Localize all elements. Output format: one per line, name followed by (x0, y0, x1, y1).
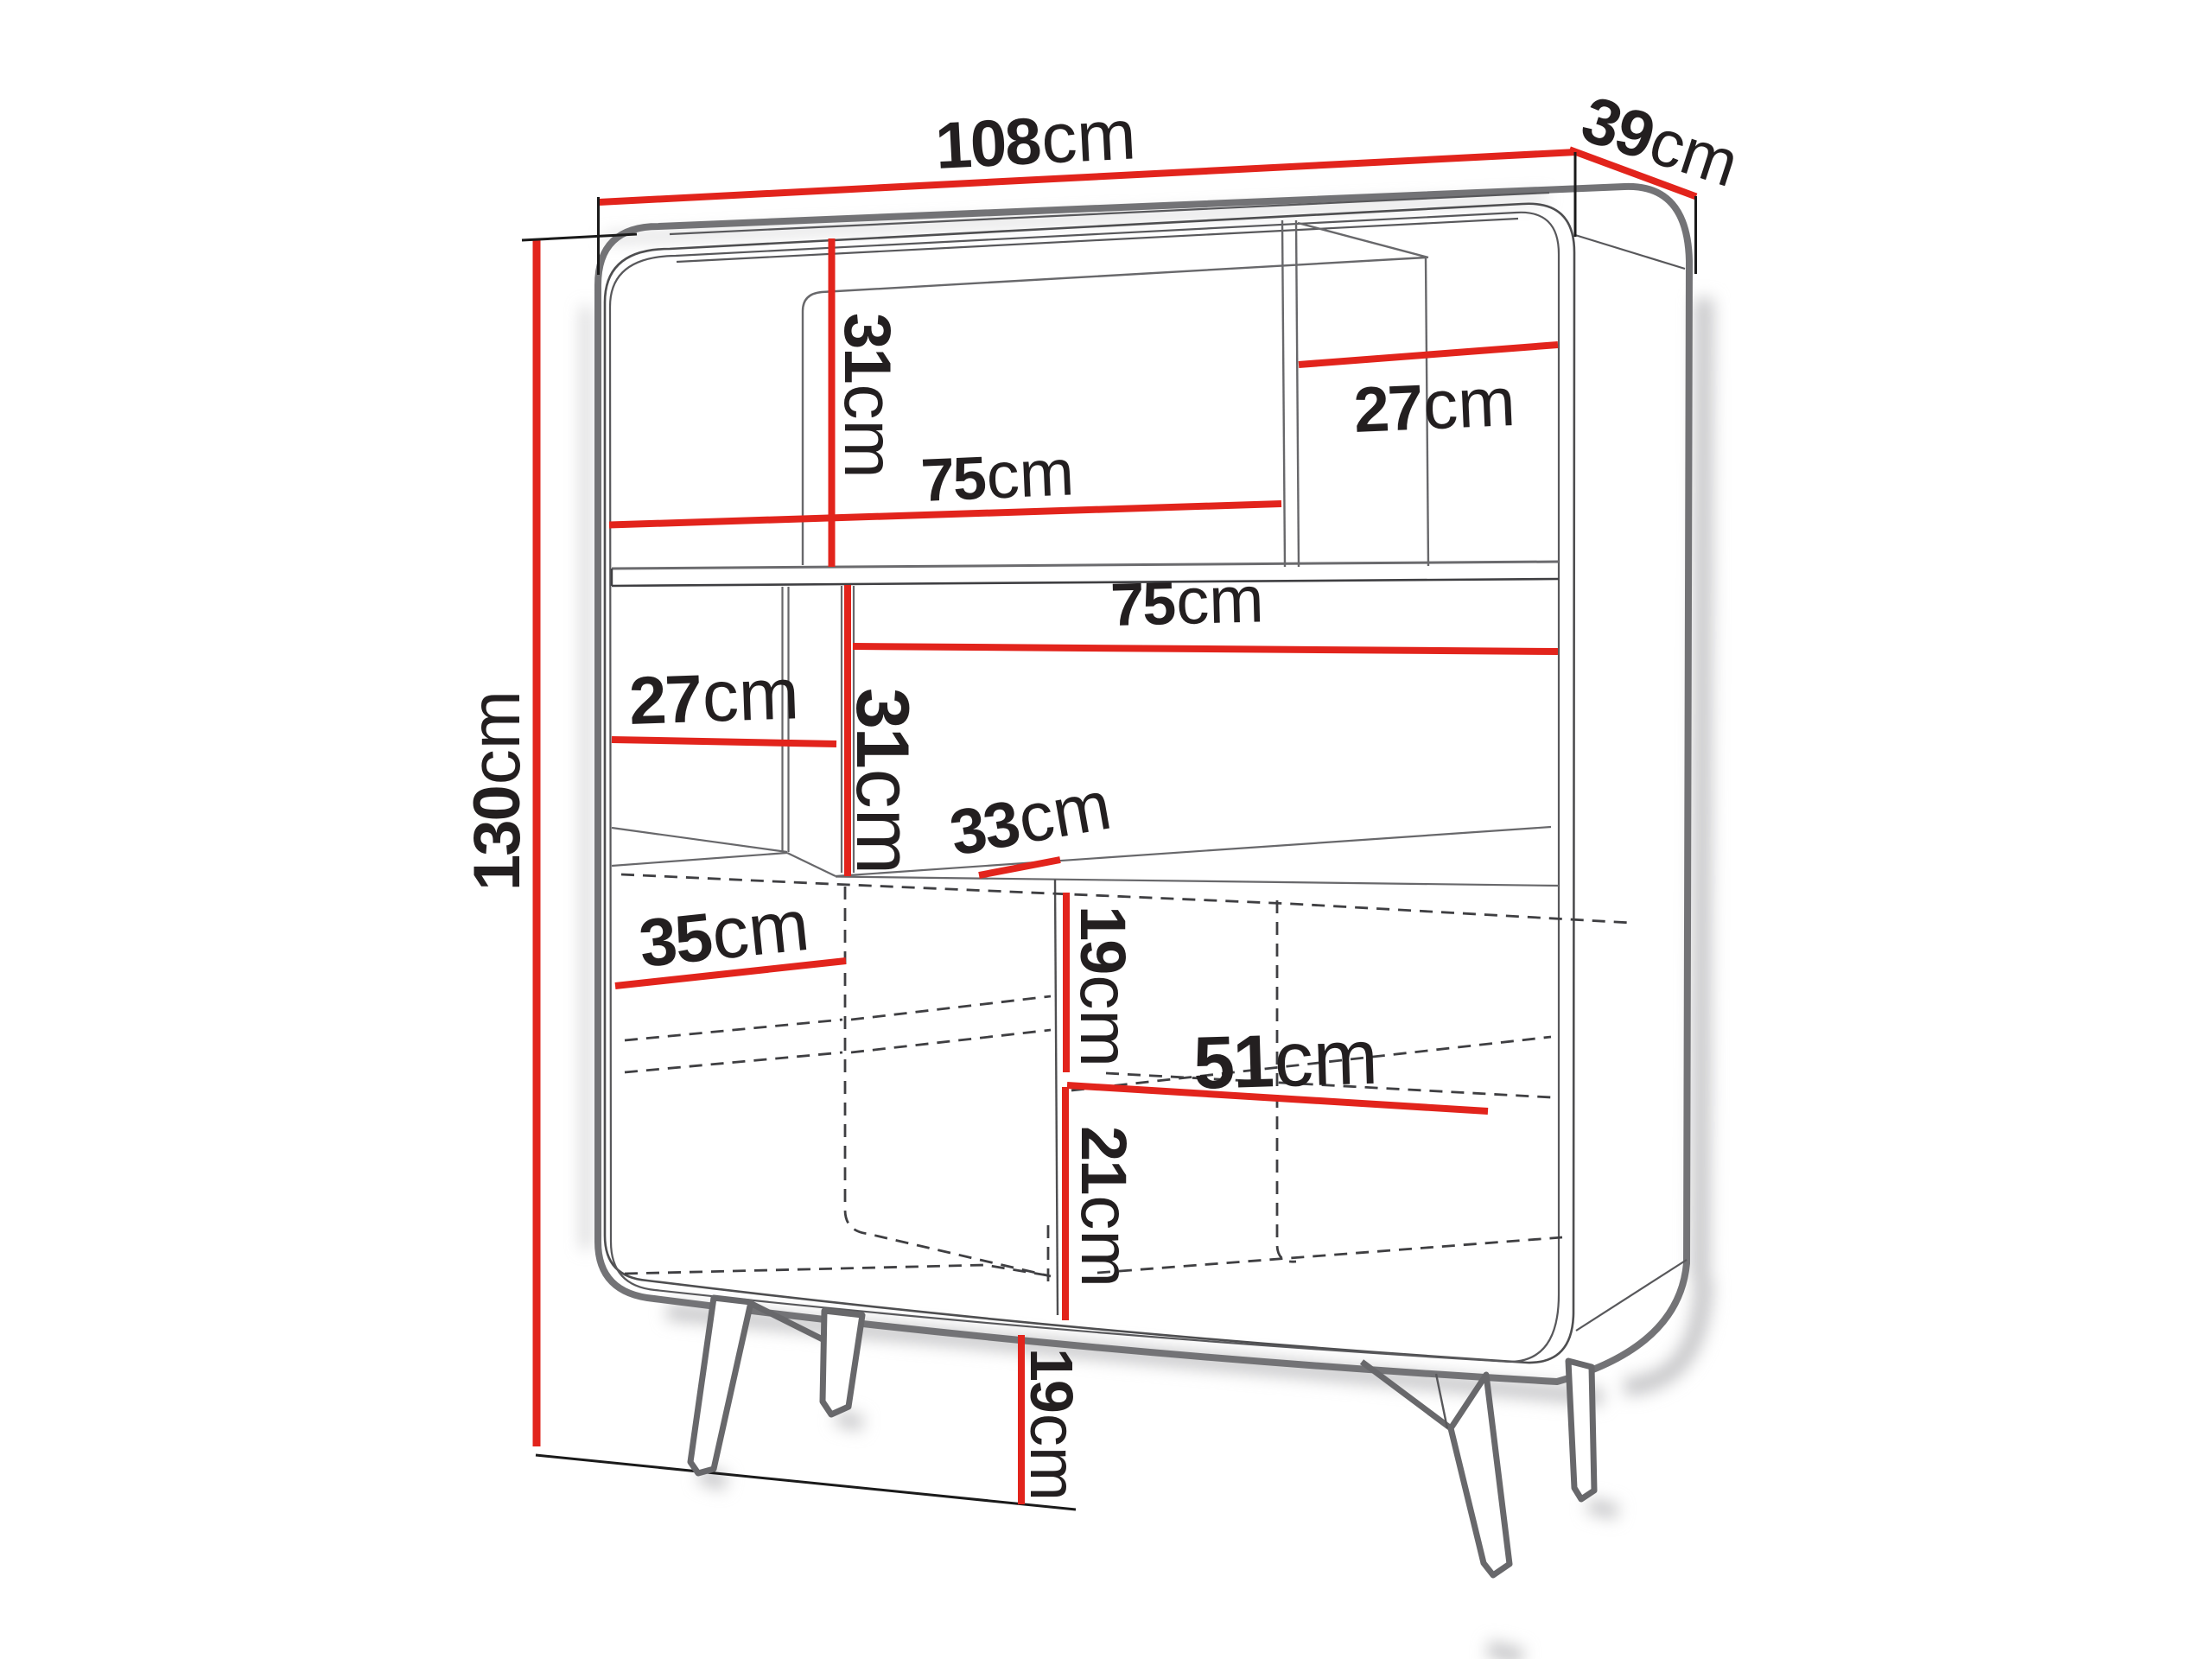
svg-text:27cm: 27cm (1352, 363, 1517, 447)
svg-text:27cm: 27cm (627, 652, 800, 740)
svg-text:31cm: 31cm (840, 688, 928, 874)
svg-text:108cm: 108cm (933, 95, 1137, 184)
svg-text:19cm: 19cm (1066, 906, 1143, 1067)
svg-text:130cm: 130cm (456, 690, 535, 891)
svg-text:75cm: 75cm (919, 435, 1076, 516)
svg-text:19cm: 19cm (1016, 1348, 1090, 1501)
svg-text:21cm: 21cm (1067, 1126, 1144, 1287)
svg-text:75cm: 75cm (1109, 563, 1264, 640)
svg-text:31cm: 31cm (829, 313, 908, 479)
svg-text:51cm: 51cm (1192, 1014, 1380, 1106)
